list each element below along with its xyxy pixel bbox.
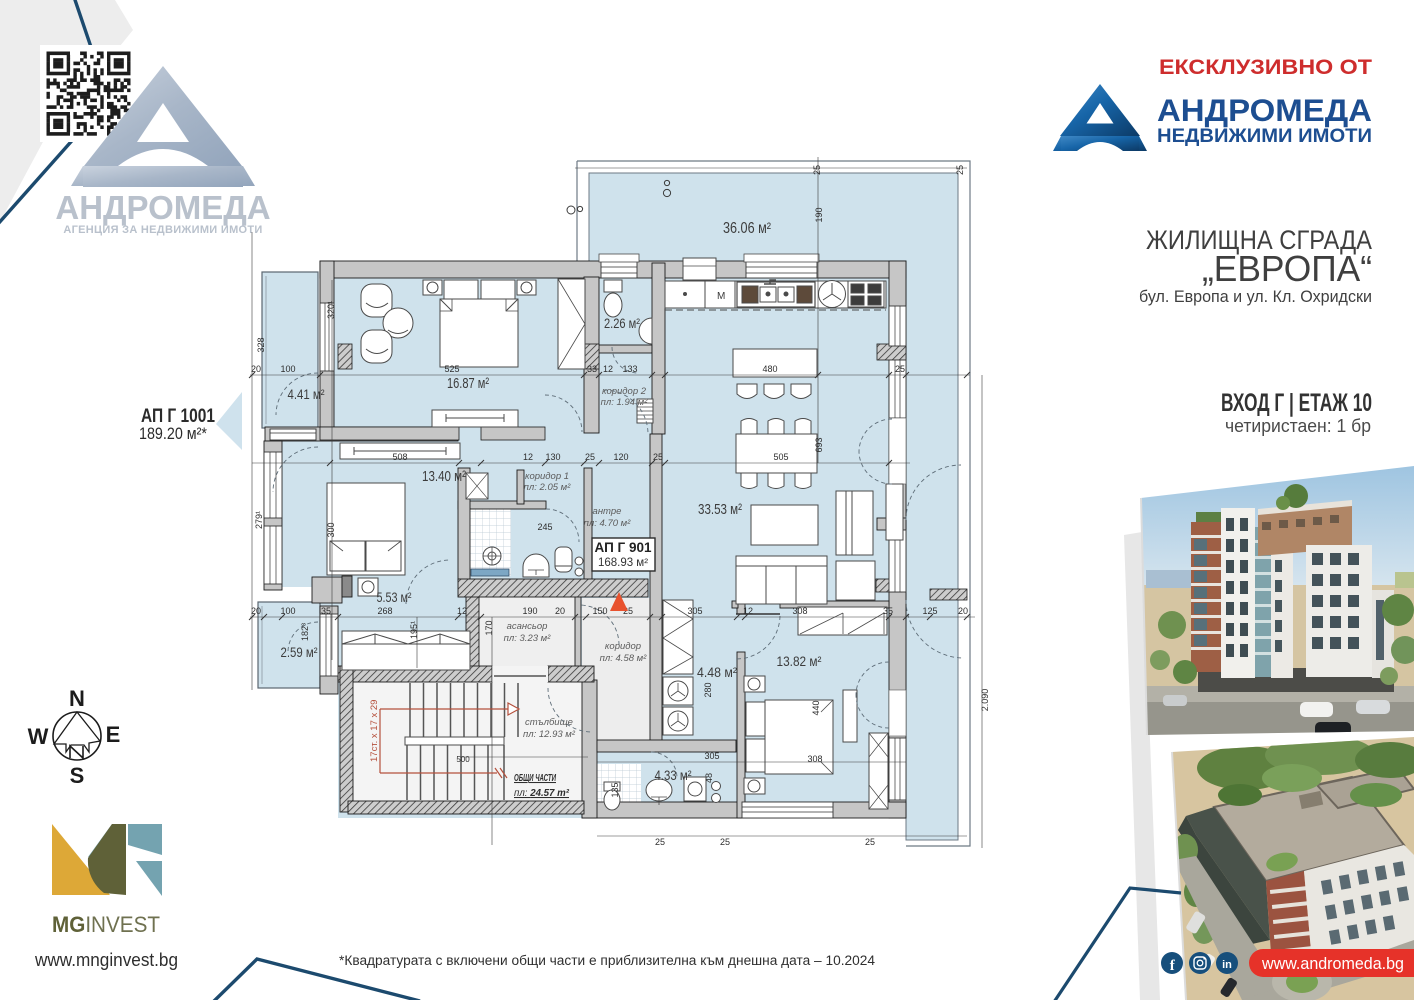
svg-text:4.41 м²: 4.41 м² [288, 387, 325, 402]
svg-text:268: 268 [377, 606, 392, 616]
svg-text:120: 120 [613, 452, 628, 462]
svg-text:M: M [717, 291, 725, 302]
svg-text:коридор: коридор [605, 641, 641, 652]
svg-text:150: 150 [592, 606, 607, 616]
svg-text:100: 100 [280, 364, 295, 374]
svg-text:АП Г 1001: АП Г 1001 [141, 405, 215, 427]
svg-text:стълбище: стълбище [525, 717, 573, 728]
svg-text:168.93 м²: 168.93 м² [598, 557, 648, 569]
svg-text:20: 20 [251, 364, 261, 374]
svg-text:500: 500 [456, 755, 470, 764]
svg-text:693: 693 [814, 437, 824, 452]
svg-text:пл: 12.93 м²: пл: 12.93 м² [523, 729, 576, 740]
svg-text:25: 25 [955, 165, 965, 175]
svg-text:20: 20 [251, 606, 261, 616]
svg-text:195¹: 195¹ [409, 621, 419, 639]
svg-text:четиристаен: 1 бр: четиристаен: 1 бр [1225, 415, 1371, 436]
svg-text:коридор 1: коридор 1 [525, 471, 569, 482]
svg-text:ЕКСКЛУЗИВНО ОТ: ЕКСКЛУЗИВНО ОТ [1159, 56, 1372, 79]
svg-text:189.20 м²*: 189.20 м²* [139, 425, 208, 443]
svg-text:20: 20 [555, 606, 565, 616]
svg-text:бул. Европа и ул. Кл. Охридски: бул. Европа и ул. Кл. Охридски [1139, 288, 1372, 306]
svg-text:асансьор: асансьор [507, 621, 548, 632]
svg-text:НЕДВИЖИМИ ИМОТИ: НЕДВИЖИМИ ИМОТИ [1157, 126, 1372, 147]
svg-text:13.82 м²: 13.82 м² [777, 653, 822, 669]
svg-text:525: 525 [444, 364, 459, 374]
svg-text:36.06 м²: 36.06 м² [723, 220, 771, 237]
svg-text:25: 25 [720, 837, 730, 847]
svg-text:12: 12 [603, 364, 613, 374]
svg-text:E: E [106, 722, 121, 747]
svg-text:ВХОД Г | ЕТАЖ 10: ВХОД Г | ЕТАЖ 10 [1221, 389, 1372, 417]
svg-text:ОБЩИ ЧАСТИ: ОБЩИ ЧАСТИ [514, 772, 556, 784]
svg-text:190: 190 [814, 207, 824, 222]
svg-text:25: 25 [865, 837, 875, 847]
svg-text:33.53 м²: 33.53 м² [698, 501, 742, 518]
svg-text:MGINVEST: MGINVEST [52, 912, 160, 937]
svg-text:2.26 м²: 2.26 м² [604, 316, 640, 331]
svg-text:W: W [28, 724, 49, 749]
svg-text:300: 300 [326, 522, 336, 537]
svg-text:480: 480 [762, 364, 777, 374]
svg-text:279¹: 279¹ [254, 511, 264, 529]
svg-text:505: 505 [773, 452, 788, 462]
svg-text:12: 12 [523, 452, 533, 462]
svg-text:АГЕНЦИЯ ЗА НЕДВИЖИМИ ИМОТИ: АГЕНЦИЯ ЗА НЕДВИЖИМИ ИМОТИ [63, 224, 262, 236]
svg-text:www.andromeda.bg: www.andromeda.bg [1261, 955, 1404, 973]
svg-text:4.48 м²: 4.48 м² [697, 665, 737, 680]
svg-text:пл: 3.23 м²: пл: 3.23 м² [504, 633, 552, 644]
svg-text:„ЕВРОПА“: „ЕВРОПА“ [1202, 248, 1372, 289]
svg-text:N: N [69, 686, 85, 711]
svg-text:пл: 1.94 м²: пл: 1.94 м² [601, 397, 649, 408]
svg-text:280: 280 [703, 682, 713, 697]
svg-text:25: 25 [655, 837, 665, 847]
svg-text:2.59 м²: 2.59 м² [281, 645, 318, 660]
svg-text:пл: 4.70 м²: пл: 4.70 м² [584, 518, 632, 529]
svg-text:S: S [70, 763, 85, 788]
svg-text:in: in [1222, 959, 1232, 971]
svg-text:305: 305 [704, 751, 719, 761]
svg-text:308: 308 [792, 606, 807, 616]
svg-text:*Квадратурата с включени общи: *Квадратурата с включени общи части е пр… [339, 953, 875, 968]
svg-text:33: 33 [587, 364, 597, 374]
svg-text:35: 35 [321, 606, 331, 616]
svg-text:АП Г 901: АП Г 901 [595, 540, 652, 555]
svg-text:АНДРОМЕДА: АНДРОМЕДА [55, 189, 270, 226]
svg-text:48: 48 [704, 773, 714, 783]
svg-text:320¹: 320¹ [326, 301, 336, 319]
svg-text:308: 308 [807, 754, 822, 764]
svg-text:245: 245 [537, 522, 552, 532]
svg-text:13.40 м²: 13.40 м² [422, 468, 466, 485]
svg-text:16.87 м²: 16.87 м² [447, 375, 489, 392]
svg-text:2.090: 2.090 [980, 689, 990, 712]
svg-text:12: 12 [457, 606, 467, 616]
svg-text:www.mnginvest.bg: www.mnginvest.bg [34, 949, 178, 970]
svg-text:305: 305 [687, 606, 702, 616]
svg-text:100: 100 [280, 606, 295, 616]
svg-text:коридор 2: коридор 2 [602, 386, 647, 397]
svg-text:135: 135 [610, 782, 620, 797]
svg-text:508: 508 [392, 452, 407, 462]
svg-text:АНДРОМЕДА: АНДРОМЕДА [1157, 92, 1372, 128]
svg-text:пл: 2.05 м²: пл: 2.05 м² [524, 482, 572, 493]
svg-text:125: 125 [922, 606, 937, 616]
svg-text:25: 25 [812, 165, 822, 175]
svg-text:пл: 24.57 m²: пл: 24.57 m² [514, 787, 569, 799]
svg-text:4.33 м²: 4.33 м² [655, 768, 692, 783]
svg-text:133: 133 [622, 364, 637, 374]
svg-text:182³: 182³ [300, 623, 310, 641]
svg-text:20: 20 [958, 606, 968, 616]
svg-text:пл: 4.58 м²: пл: 4.58 м² [600, 653, 648, 664]
svg-text:17ст. х 17 х 29: 17ст. х 17 х 29 [369, 700, 380, 762]
svg-text:25: 25 [895, 364, 905, 374]
svg-text:328: 328 [256, 337, 266, 352]
svg-text:440: 440 [811, 700, 821, 715]
svg-text:170: 170 [484, 620, 494, 635]
svg-text:антре: антре [593, 506, 622, 517]
svg-text:190: 190 [522, 606, 537, 616]
svg-text:5.53 м²: 5.53 м² [377, 590, 412, 605]
